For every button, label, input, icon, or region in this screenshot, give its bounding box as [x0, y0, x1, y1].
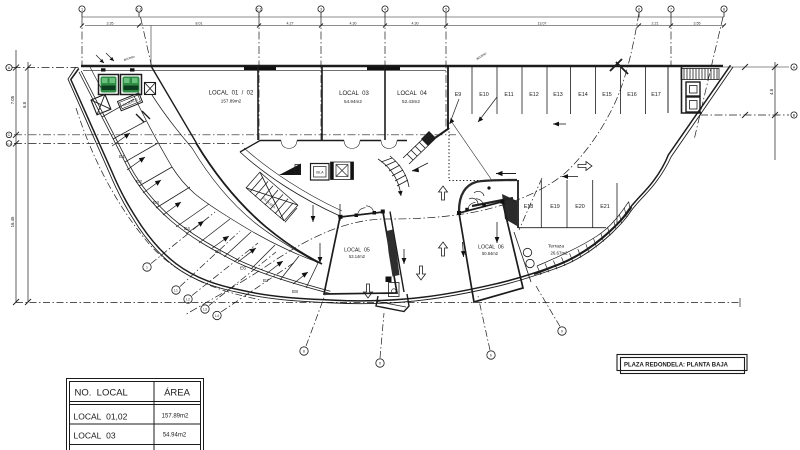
- svg-text:50.84m2: 50.84m2: [482, 251, 499, 256]
- svg-text:157.89m2: 157.89m2: [162, 414, 189, 420]
- svg-text:2.1: 2.1: [256, 7, 261, 11]
- svg-text:4.30: 4.30: [412, 22, 419, 26]
- svg-text:LOCAL 04: LOCAL 04: [397, 91, 427, 97]
- svg-text:54.94m2: 54.94m2: [163, 433, 187, 439]
- svg-text:4: 4: [384, 7, 386, 11]
- svg-text:1: 1: [146, 265, 148, 269]
- svg-text:E5: E5: [215, 249, 221, 255]
- svg-text:E2: E2: [136, 179, 142, 185]
- svg-text:E10: E10: [479, 92, 489, 98]
- svg-text:LOCAL 01,02: LOCAL 01,02: [74, 412, 128, 422]
- svg-text:E11: E11: [504, 92, 513, 98]
- svg-text:NO. LOCAL: NO. LOCAL: [75, 388, 128, 399]
- svg-text:E16: E16: [627, 92, 637, 98]
- svg-text:E17: E17: [651, 92, 661, 98]
- svg-text:E14: E14: [578, 92, 588, 98]
- svg-text:3.55: 3.55: [694, 22, 701, 26]
- svg-text:1: 1: [81, 7, 83, 11]
- svg-text:E21: E21: [600, 204, 610, 210]
- svg-text:LOCAL 01 / 02: LOCAL 01 / 02: [209, 91, 254, 97]
- svg-text:L1: L1: [174, 288, 178, 292]
- svg-text:C.1: C.1: [7, 142, 12, 146]
- svg-text:E7: E7: [263, 278, 269, 284]
- svg-text:9: 9: [561, 329, 563, 333]
- svg-text:E8: E8: [292, 289, 298, 295]
- svg-text:2.21: 2.21: [652, 22, 659, 26]
- svg-text:LOCAL 03: LOCAL 03: [339, 91, 369, 97]
- svg-text:E12: E12: [529, 92, 539, 98]
- svg-text:E3: E3: [153, 200, 159, 206]
- svg-text:E13: E13: [553, 92, 563, 98]
- svg-text:7: 7: [670, 7, 672, 11]
- svg-text:ISLA: ISLA: [316, 171, 324, 175]
- svg-text:Terraza: Terraza: [548, 244, 564, 250]
- svg-text:157.89m2: 157.89m2: [221, 99, 242, 104]
- svg-text:E9: E9: [455, 92, 462, 98]
- svg-text:L3: L3: [203, 307, 207, 311]
- svg-text:PLAZA REDONDELA: PLANTA BAJA: PLAZA REDONDELA: PLANTA BAJA: [624, 362, 728, 369]
- svg-text:3.35: 3.35: [107, 22, 114, 26]
- svg-text:4.8: 4.8: [769, 88, 774, 95]
- svg-text:b: b: [490, 353, 492, 357]
- svg-text:B: B: [793, 113, 796, 117]
- svg-text:4.30: 4.30: [350, 22, 357, 26]
- svg-text:52.43m2: 52.43m2: [402, 99, 420, 104]
- svg-text:C: C: [8, 133, 11, 137]
- svg-text:L2: L2: [186, 297, 190, 301]
- svg-text:E6: E6: [240, 266, 246, 272]
- svg-text:9: 9: [379, 361, 381, 365]
- svg-text:LOCAL 03: LOCAL 03: [74, 431, 116, 441]
- svg-text:54.94m2: 54.94m2: [344, 99, 362, 104]
- svg-text:16.45: 16.45: [10, 216, 15, 227]
- svg-text:A: A: [8, 66, 11, 70]
- svg-text:LOCAL 06: LOCAL 06: [478, 245, 504, 251]
- svg-text:13.07: 13.07: [538, 22, 547, 26]
- svg-text:8.01: 8.01: [196, 22, 203, 26]
- svg-text:E15: E15: [602, 92, 612, 98]
- svg-text:8: 8: [723, 7, 725, 11]
- svg-text:A: A: [793, 65, 796, 69]
- svg-text:53.14m2: 53.14m2: [349, 254, 366, 259]
- svg-text:1.1: 1.1: [136, 7, 141, 11]
- svg-text:5: 5: [445, 7, 447, 11]
- svg-text:E20: E20: [575, 204, 585, 210]
- svg-text:7.05: 7.05: [10, 95, 15, 104]
- svg-text:6: 6: [638, 7, 640, 11]
- svg-text:8: 8: [303, 349, 305, 353]
- svg-text:L4: L4: [215, 314, 219, 318]
- svg-text:4.27: 4.27: [287, 22, 294, 26]
- svg-text:E1: E1: [119, 154, 125, 160]
- svg-text:ÁREA: ÁREA: [164, 388, 191, 399]
- svg-text:3: 3: [320, 7, 322, 11]
- svg-text:E19: E19: [550, 204, 560, 210]
- svg-text:E4: E4: [184, 226, 190, 232]
- svg-text:LOCAL 05: LOCAL 05: [344, 248, 370, 254]
- svg-text:6.8: 6.8: [22, 101, 27, 108]
